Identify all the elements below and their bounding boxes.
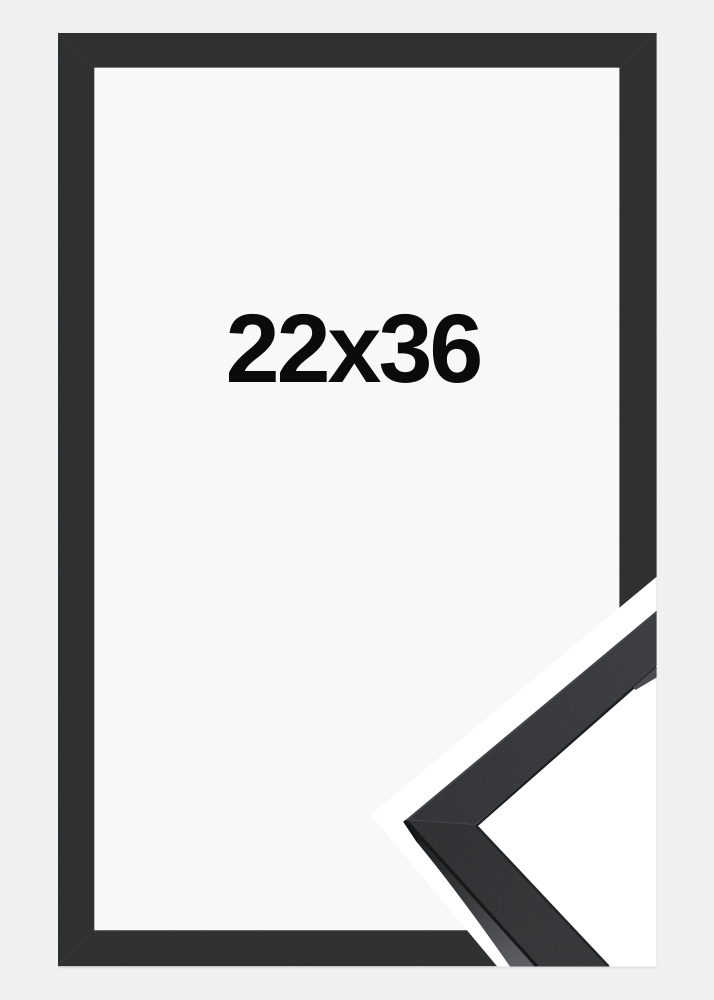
- svg-text:22x36: 22x36: [226, 294, 481, 403]
